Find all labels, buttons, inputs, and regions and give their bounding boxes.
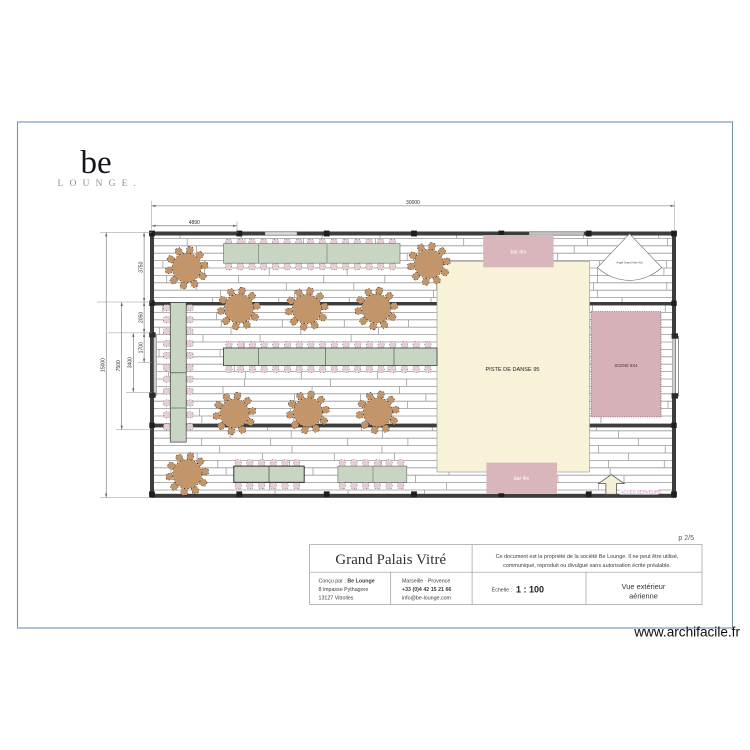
svg-text:3400: 3400 bbox=[128, 357, 134, 368]
svg-text:PISTE DE DANSE 95: PISTE DE DANSE 95 bbox=[485, 367, 539, 373]
svg-text:info@be-lounge.com: info@be-lounge.com bbox=[402, 596, 452, 602]
svg-text:Échelle :: Échelle : bbox=[492, 587, 512, 594]
svg-text:Ce document est la propriété d: Ce document est la propriété de la socié… bbox=[496, 554, 679, 560]
svg-text:8 impasse Pythagore: 8 impasse Pythagore bbox=[319, 587, 369, 593]
svg-text:bar 4m: bar 4m bbox=[511, 249, 527, 255]
svg-text:www.archifacile.fr: www.archifacile.fr bbox=[633, 625, 740, 640]
svg-text:3750: 3750 bbox=[139, 261, 145, 272]
svg-text:be: be bbox=[81, 145, 112, 181]
svg-text:LOUNGE.: LOUNGE. bbox=[58, 178, 143, 189]
svg-text:7500: 7500 bbox=[116, 360, 122, 371]
svg-text:communiqué, reproduit ou divul: communiqué, reproduit ou divulgué sans a… bbox=[503, 563, 671, 569]
svg-text:13127 Vitrolles: 13127 Vitrolles bbox=[319, 596, 354, 602]
svg-text:bar 4m: bar 4m bbox=[514, 476, 530, 482]
svg-text:Marseille · Provence: Marseille · Provence bbox=[402, 579, 450, 585]
svg-text:Grand Palais Vitré: Grand Palais Vitré bbox=[335, 552, 446, 568]
svg-text:Angle Grand Vitré 4x3: Angle Grand Vitré 4x3 bbox=[616, 261, 643, 265]
svg-text:30000: 30000 bbox=[406, 200, 420, 206]
svg-text:+33 (0)4 42 15 21 66: +33 (0)4 42 15 21 66 bbox=[402, 587, 451, 593]
svg-text:p 2/5: p 2/5 bbox=[678, 535, 694, 542]
svg-text:15000: 15000 bbox=[101, 358, 107, 372]
svg-text:Conçu par : Be Lounge: Conçu par : Be Lounge bbox=[319, 579, 375, 585]
svg-text:aérienne: aérienne bbox=[629, 592, 658, 601]
svg-text:Vue extérieur: Vue extérieur bbox=[622, 582, 666, 591]
svg-text:ACCES SERVEURS: ACCES SERVEURS bbox=[621, 489, 661, 494]
svg-text:SCENE 6X4: SCENE 6X4 bbox=[614, 363, 638, 368]
svg-text:4890: 4890 bbox=[189, 220, 200, 226]
svg-text:2050: 2050 bbox=[139, 312, 145, 323]
svg-text:1700: 1700 bbox=[139, 342, 145, 353]
svg-text:1 : 100: 1 : 100 bbox=[516, 584, 544, 594]
